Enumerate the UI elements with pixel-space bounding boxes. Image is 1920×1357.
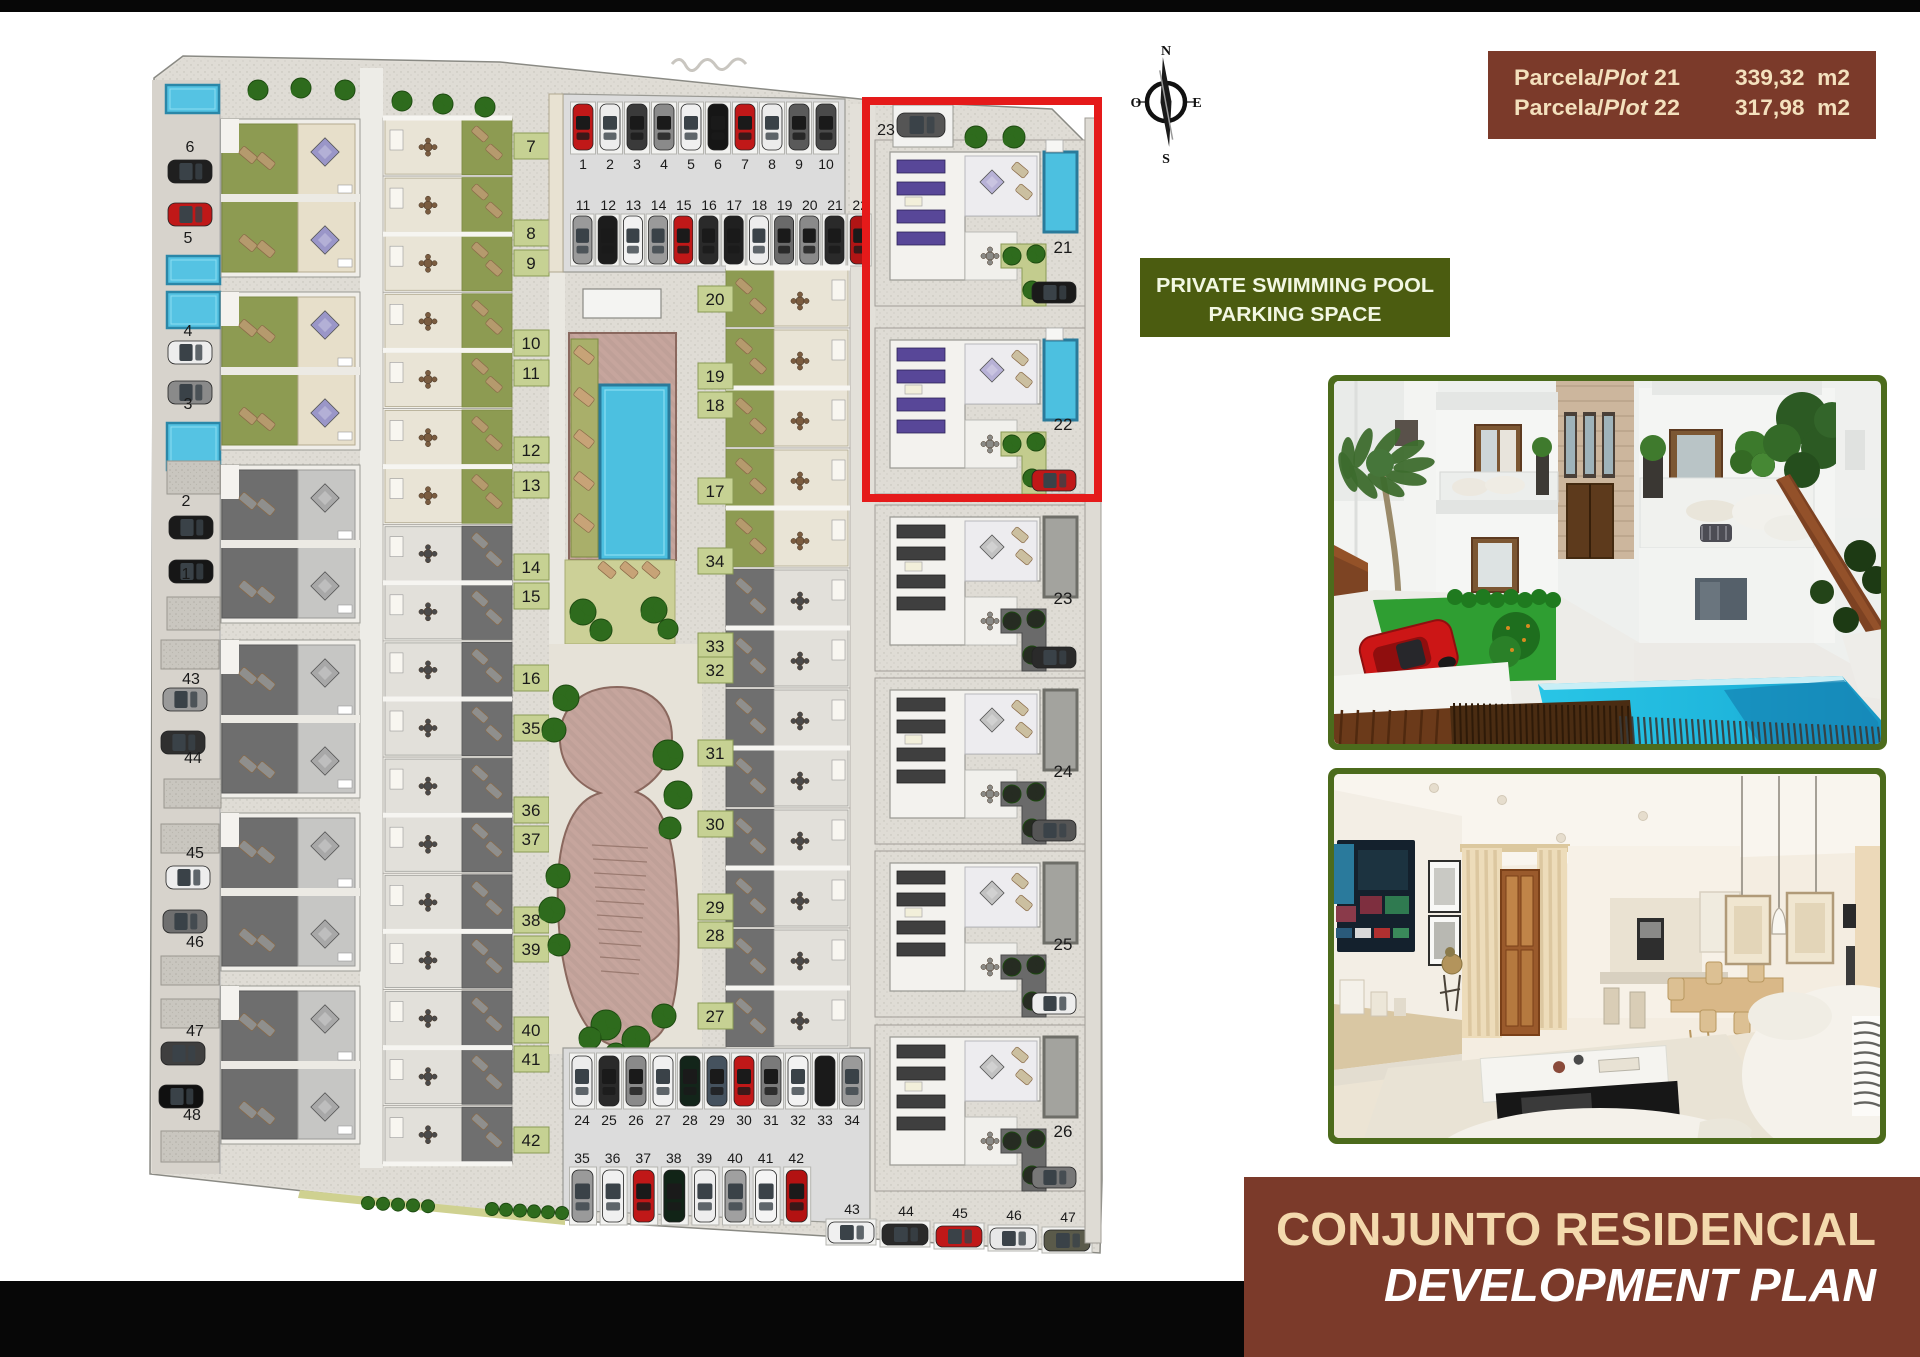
svg-text:CONJUNTO RESIDENCIAL: CONJUNTO RESIDENCIAL [1276,1203,1876,1255]
svg-text:32: 32 [790,1112,806,1128]
svg-text:37: 37 [635,1150,651,1166]
svg-text:39: 39 [697,1150,713,1166]
svg-text:46: 46 [1006,1207,1022,1223]
svg-text:2: 2 [182,493,191,510]
svg-text:Parcela/Plot 21: Parcela/Plot 21 [1514,65,1680,90]
svg-text:35: 35 [522,719,541,738]
svg-text:46: 46 [186,934,204,951]
svg-text:8: 8 [768,156,776,172]
svg-text:34: 34 [844,1112,860,1128]
svg-text:36: 36 [522,801,541,820]
svg-text:19: 19 [777,197,793,213]
svg-text:15: 15 [676,197,692,213]
svg-text:7: 7 [526,137,535,156]
svg-text:40: 40 [727,1150,743,1166]
svg-text:3: 3 [633,156,641,172]
svg-text:3: 3 [184,396,193,413]
svg-text:48: 48 [183,1107,201,1124]
svg-text:18: 18 [752,197,768,213]
svg-text:O: O [1131,96,1142,111]
svg-text:17: 17 [706,482,725,501]
svg-text:40: 40 [522,1021,541,1040]
svg-text:23: 23 [1054,589,1073,608]
svg-text:11: 11 [576,197,591,213]
svg-text:11: 11 [522,364,540,383]
svg-text:N: N [1161,44,1171,59]
svg-text:14: 14 [651,197,667,213]
svg-text:42: 42 [788,1150,804,1166]
svg-text:26: 26 [628,1112,644,1128]
svg-text:DEVELOPMENT PLAN: DEVELOPMENT PLAN [1384,1259,1877,1311]
svg-text:31: 31 [706,744,725,763]
svg-text:25: 25 [1054,935,1073,954]
svg-text:42: 42 [522,1131,541,1150]
svg-text:27: 27 [706,1007,725,1026]
svg-text:4: 4 [660,156,668,172]
svg-text:39: 39 [522,940,541,959]
svg-text:44: 44 [898,1203,914,1219]
svg-text:21: 21 [827,197,843,213]
svg-text:9: 9 [795,156,803,172]
svg-text:38: 38 [522,911,541,930]
svg-text:24: 24 [574,1112,590,1128]
svg-text:E: E [1192,96,1201,111]
svg-text:13: 13 [522,476,541,495]
svg-text:45: 45 [952,1205,968,1221]
svg-text:14: 14 [522,558,541,577]
svg-text:5: 5 [184,230,193,247]
svg-text:30: 30 [706,815,725,834]
svg-text:12: 12 [522,441,541,460]
svg-text:9: 9 [526,254,535,273]
svg-text:33: 33 [817,1112,833,1128]
svg-text:16: 16 [522,669,541,688]
svg-text:45: 45 [186,845,204,862]
svg-text:28: 28 [682,1112,698,1128]
svg-text:44: 44 [184,750,202,767]
svg-text:28: 28 [706,926,725,945]
svg-text:29: 29 [709,1112,725,1128]
svg-text:29: 29 [706,898,725,917]
svg-text:15: 15 [522,587,541,606]
svg-text:7: 7 [741,156,749,172]
svg-text:36: 36 [605,1150,621,1166]
svg-text:S: S [1162,152,1170,167]
svg-text:12: 12 [600,197,616,213]
svg-text:41: 41 [758,1150,774,1166]
svg-text:26: 26 [1054,1122,1073,1141]
svg-text:23: 23 [877,122,895,139]
svg-text:21: 21 [1054,238,1073,257]
svg-text:33: 33 [706,637,725,656]
svg-text:43: 43 [182,671,200,688]
svg-text:47: 47 [1060,1209,1076,1225]
svg-text:25: 25 [601,1112,617,1128]
svg-text:34: 34 [706,552,725,571]
svg-text:19: 19 [706,367,725,386]
svg-text:18: 18 [706,396,725,415]
svg-text:PARKING SPACE: PARKING SPACE [1209,304,1382,326]
svg-text:31: 31 [763,1112,779,1128]
svg-text:30: 30 [736,1112,752,1128]
svg-text:16: 16 [701,197,717,213]
svg-text:5: 5 [687,156,695,172]
svg-text:13: 13 [626,197,642,213]
svg-text:Parcela/Plot 22: Parcela/Plot 22 [1514,95,1680,120]
svg-text:4: 4 [184,323,193,340]
svg-text:41: 41 [522,1050,541,1069]
svg-text:38: 38 [666,1150,682,1166]
svg-text:43: 43 [844,1201,860,1217]
svg-text:22: 22 [1054,415,1073,434]
svg-text:35: 35 [574,1150,590,1166]
svg-text:27: 27 [655,1112,671,1128]
svg-text:PRIVATE SWIMMING POOL: PRIVATE SWIMMING POOL [1156,275,1434,297]
svg-text:37: 37 [522,830,541,849]
svg-text:10: 10 [522,334,541,353]
svg-text:17: 17 [726,197,742,213]
svg-text:8: 8 [526,224,535,243]
svg-text:32: 32 [706,661,725,680]
svg-text:20: 20 [706,290,725,309]
svg-text:20: 20 [802,197,818,213]
svg-text:6: 6 [714,156,722,172]
svg-text:24: 24 [1054,762,1073,781]
svg-text:317,98 m2: 317,98 m2 [1735,95,1850,120]
svg-text:10: 10 [818,156,834,172]
svg-text:1: 1 [182,566,191,583]
svg-text:47: 47 [186,1023,204,1040]
svg-text:1: 1 [579,156,587,172]
svg-text:2: 2 [606,156,614,172]
svg-text:6: 6 [186,139,195,156]
svg-text:339,32 m2: 339,32 m2 [1735,65,1850,90]
